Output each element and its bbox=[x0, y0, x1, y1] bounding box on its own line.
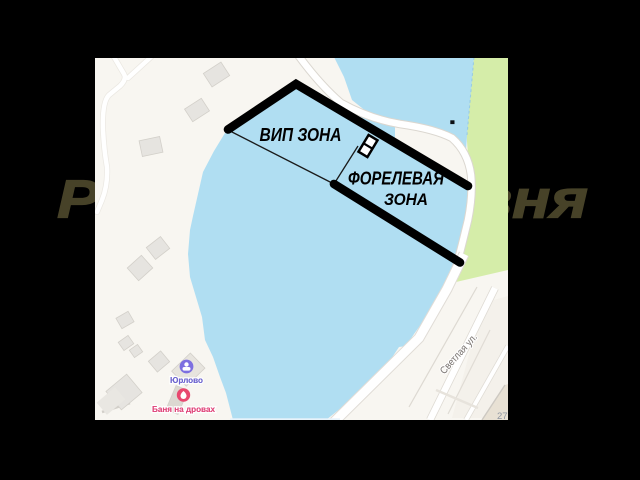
svg-text:ФОРЕЛЕВАЯ: ФОРЕЛЕВАЯ bbox=[348, 169, 445, 189]
svg-text:ЗОНА: ЗОНА bbox=[384, 190, 428, 209]
svg-text:ВИП ЗОНА: ВИП ЗОНА bbox=[260, 124, 342, 145]
svg-text:Юрлово: Юрлово bbox=[170, 375, 203, 385]
svg-text:Баня на дровах: Баня на дровах bbox=[152, 404, 215, 414]
